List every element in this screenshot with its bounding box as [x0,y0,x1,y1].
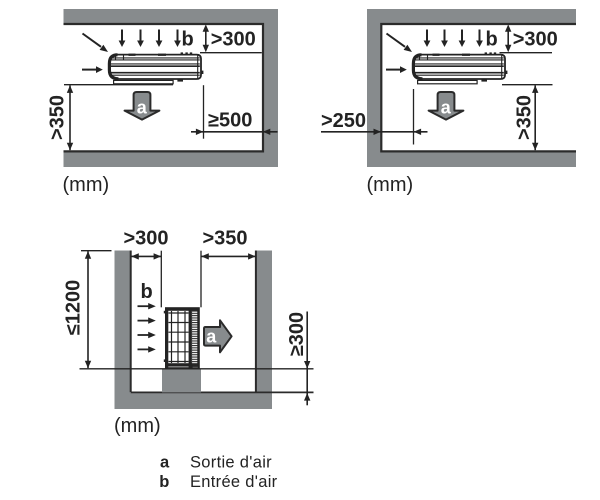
svg-text:>350: >350 [202,228,247,250]
svg-text:Sortie d'air: Sortie d'air [190,454,272,472]
svg-text:>350: >350 [514,95,536,140]
svg-text:(mm): (mm) [114,415,161,437]
svg-text:a: a [137,98,148,118]
svg-text:a: a [441,98,452,118]
svg-text:a: a [206,327,217,347]
svg-text:>300: >300 [123,228,168,250]
svg-text:≤1200: ≤1200 [63,280,85,335]
svg-text:a: a [160,454,170,472]
svg-text:>250: >250 [321,110,366,132]
svg-text:≥300: ≥300 [286,312,308,356]
svg-text:Entrée d'air: Entrée d'air [190,473,278,491]
svg-text:b: b [182,28,194,50]
svg-text:>350: >350 [46,95,68,140]
svg-text:≥500: ≥500 [208,109,252,131]
svg-text:b: b [159,473,169,491]
svg-text:>300: >300 [211,28,256,50]
svg-text:(mm): (mm) [63,174,110,196]
svg-text:b: b [141,281,153,303]
svg-text:b: b [486,28,498,50]
svg-text:>300: >300 [513,28,558,50]
svg-text:(mm): (mm) [367,174,414,196]
